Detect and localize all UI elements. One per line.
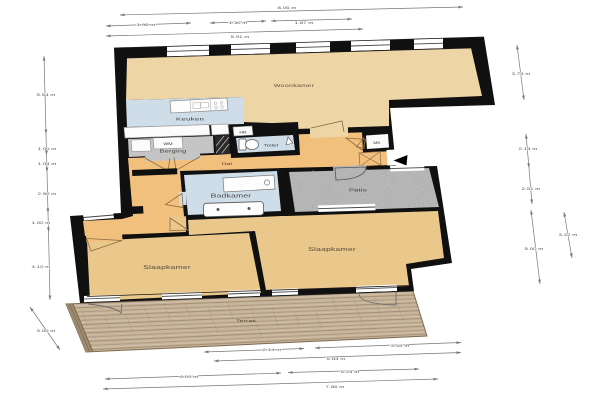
svg-text:Woonkamer: Woonkamer [274,84,314,88]
svg-text:WM: WM [163,142,173,146]
svg-text:2.14 m: 2.14 m [519,147,538,152]
svg-text:3.00 m: 3.00 m [37,329,56,334]
svg-text:HR: HR [239,130,246,134]
svg-text:MK: MK [373,141,380,145]
svg-text:1.00 m: 1.00 m [32,221,51,226]
svg-text:8.06 m: 8.06 m [278,6,297,11]
svg-text:1.96 m: 1.96 m [137,23,156,28]
svg-text:Slaapkamer: Slaapkamer [308,247,356,253]
svg-text:3.75 m: 3.75 m [512,72,531,77]
svg-text:5.84 m: 5.84 m [327,357,346,362]
svg-text:5.00 m: 5.00 m [525,247,544,252]
svg-text:Badkamer: Badkamer [211,193,252,199]
svg-text:7.86 m: 7.86 m [326,385,345,390]
svg-text:5.24 m: 5.24 m [341,370,360,375]
svg-text:5.91 m: 5.91 m [231,35,250,40]
svg-text:3.45 m: 3.45 m [391,344,410,349]
svg-text:1.00 m: 1.00 m [38,147,57,152]
svg-text:2.50 m: 2.50 m [38,192,57,197]
svg-text:1.04 m: 1.04 m [38,162,57,167]
svg-text:4.09 m: 4.09 m [180,375,199,380]
svg-text:1.87 m: 1.87 m [295,21,314,26]
svg-text:1.30 m: 1.30 m [229,21,248,26]
svg-text:Slaapkamer: Slaapkamer [143,265,191,271]
svg-text:4.10 m: 4.10 m [32,265,51,270]
svg-text:Terras: Terras [236,319,256,323]
svg-text:3.22 m: 3.22 m [559,233,578,238]
svg-text:Toilet: Toilet [264,143,279,148]
svg-text:Patio: Patio [349,188,367,193]
svg-text:Berging: Berging [159,149,187,154]
svg-text:2.51 m: 2.51 m [522,187,541,192]
svg-text:2.14 m: 2.14 m [263,348,282,353]
svg-text:Hal: Hal [222,162,232,166]
svg-text:5.54 m: 5.54 m [37,93,56,98]
svg-text:Keuken: Keuken [176,117,204,122]
